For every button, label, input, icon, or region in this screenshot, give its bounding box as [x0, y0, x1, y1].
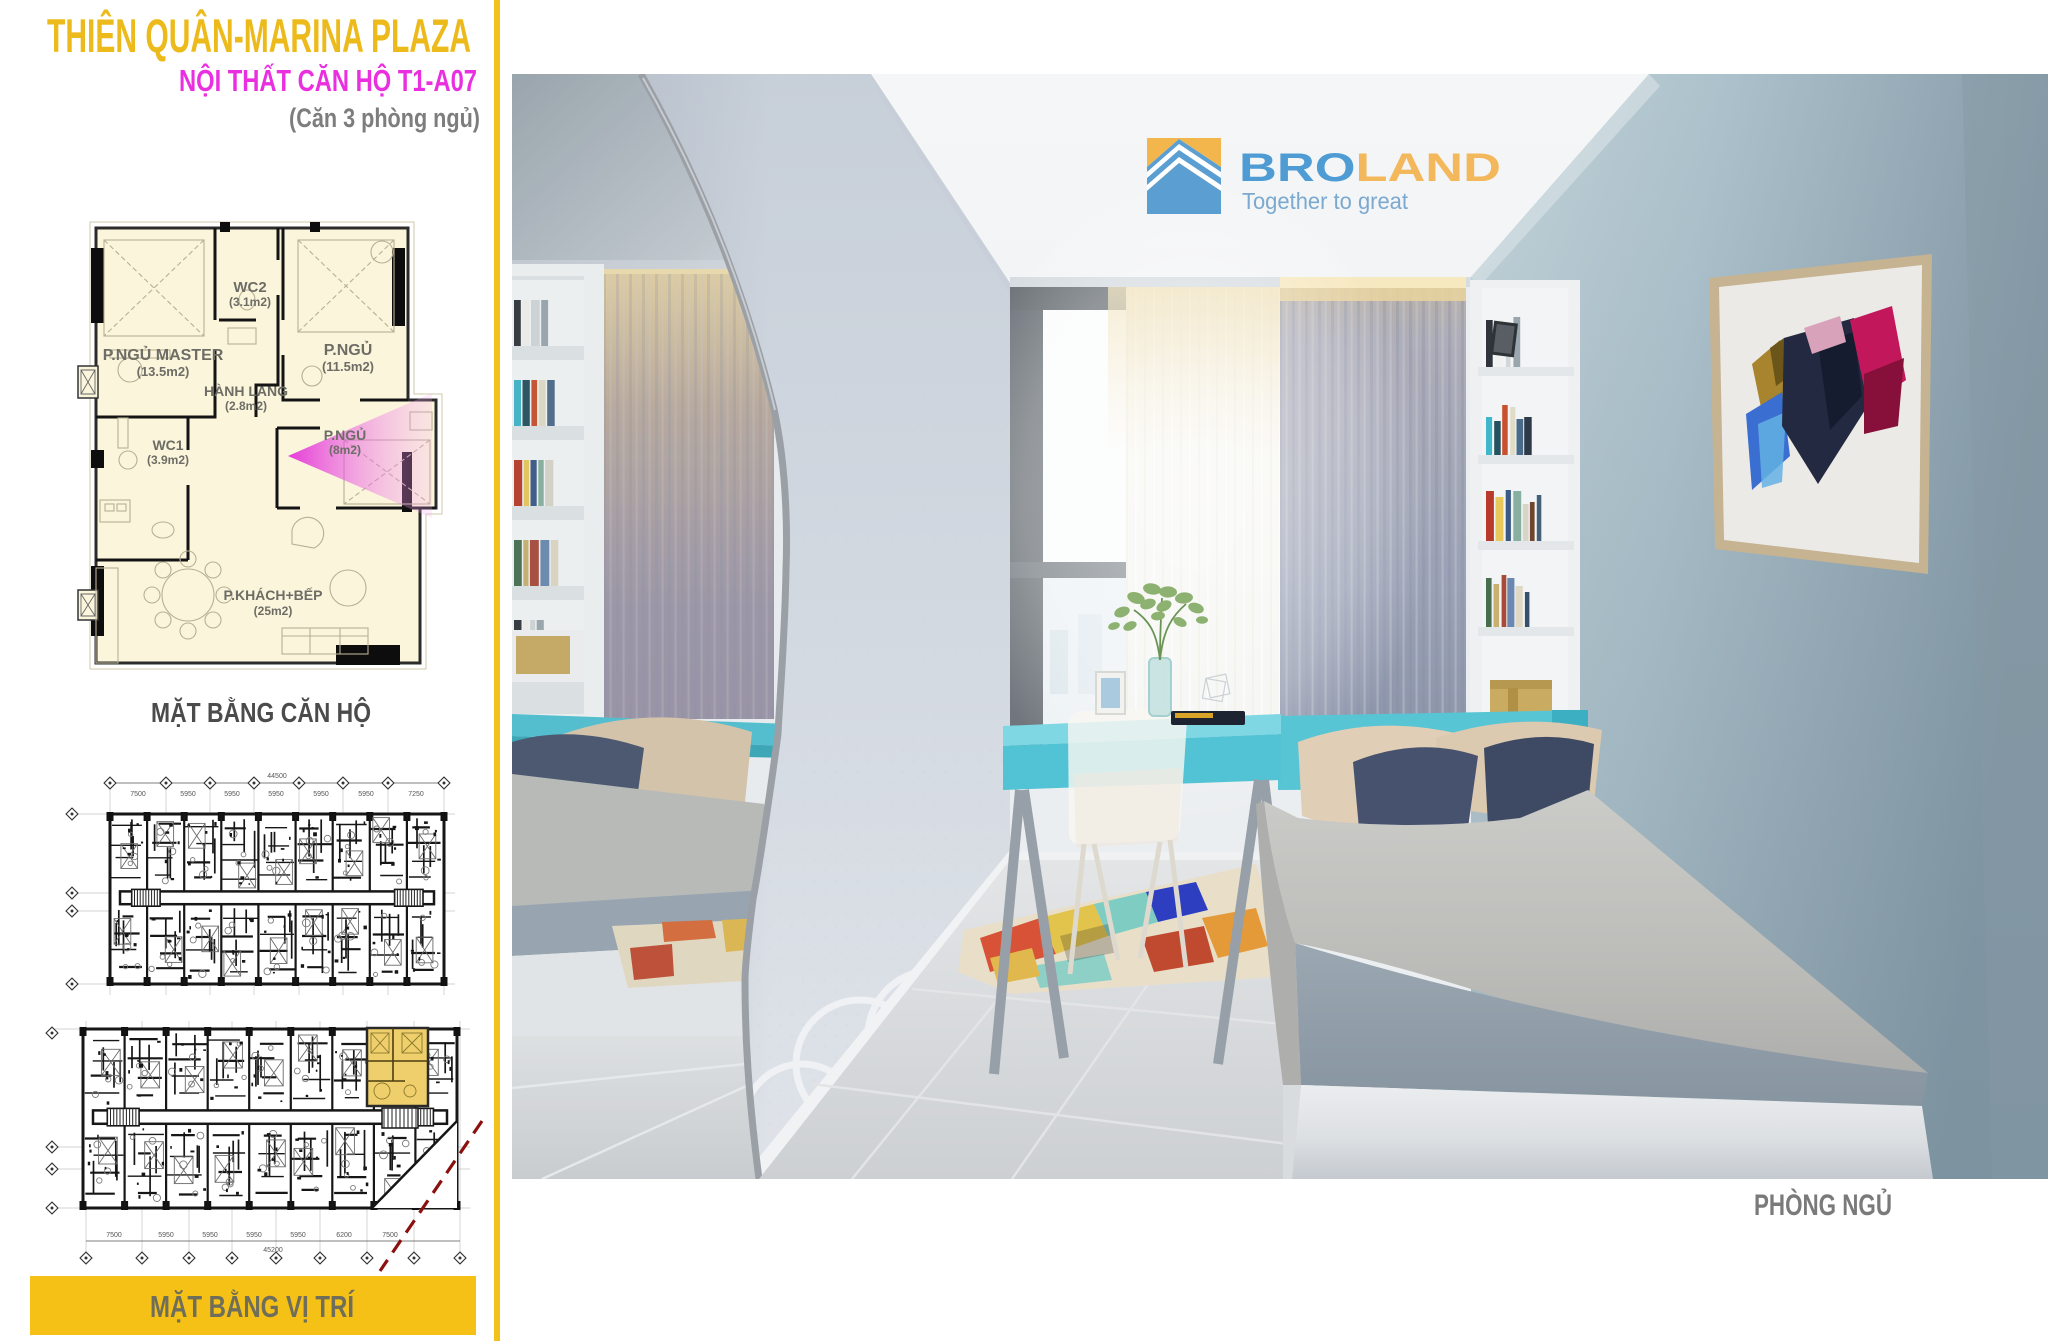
svg-text:7500: 7500 [130, 791, 146, 798]
svg-text:P.NGỦ: P.NGỦ [324, 426, 367, 443]
svg-text:5950: 5950 [224, 791, 240, 798]
svg-text:7500: 7500 [106, 1232, 122, 1239]
svg-text:BROLAND: BROLAND [1239, 146, 1501, 190]
svg-text:THIÊN QUÂN-MARINA PLAZA: THIÊN QUÂN-MARINA PLAZA [47, 9, 471, 62]
svg-text:7250: 7250 [408, 791, 424, 798]
svg-text:P.NGỦ: P.NGỦ [324, 340, 373, 359]
svg-text:(Căn 3 phòng ngủ): (Căn 3 phòng ngủ) [289, 103, 480, 133]
svg-text:5950: 5950 [358, 791, 374, 798]
svg-text:5950: 5950 [202, 1232, 218, 1239]
svg-text:5950: 5950 [313, 791, 329, 798]
svg-text:(13.5m2): (13.5m2) [137, 364, 190, 379]
svg-text:(8m2): (8m2) [329, 443, 361, 457]
svg-text:MẶT BẰNG CĂN HỘ: MẶT BẰNG CĂN HỘ [151, 696, 371, 728]
svg-text:5950: 5950 [180, 791, 196, 798]
svg-text:(3.1m2): (3.1m2) [229, 295, 271, 309]
svg-text:MẶT BẰNG VỊ TRÍ: MẶT BẰNG VỊ TRÍ [150, 1289, 355, 1324]
svg-text:(25m2): (25m2) [254, 604, 293, 618]
svg-text:WC1: WC1 [152, 437, 183, 453]
svg-text:5950: 5950 [268, 791, 284, 798]
svg-text:44500: 44500 [267, 773, 287, 780]
svg-text:(11.5m2): (11.5m2) [322, 359, 374, 374]
svg-text:PHÒNG NGỦ: PHÒNG NGỦ [1754, 1188, 1892, 1222]
svg-text:NỘI THẤT CĂN HỘ T1-A07: NỘI THẤT CĂN HỘ T1-A07 [179, 62, 477, 98]
svg-text:P.KHÁCH+BẾP: P.KHÁCH+BẾP [224, 587, 323, 603]
svg-text:5950: 5950 [290, 1232, 306, 1239]
svg-text:6200: 6200 [336, 1232, 352, 1239]
svg-text:(2.8m2): (2.8m2) [225, 399, 267, 413]
svg-text:(3.9m2): (3.9m2) [147, 453, 189, 467]
svg-text:HÀNH LANG: HÀNH LANG [204, 383, 288, 399]
svg-text:WC2: WC2 [233, 279, 266, 296]
svg-text:Together to great: Together to great [1242, 188, 1409, 214]
svg-text:45200: 45200 [263, 1247, 283, 1254]
svg-text:P.NGỦ MASTER: P.NGỦ MASTER [103, 345, 224, 364]
svg-text:5950: 5950 [158, 1232, 174, 1239]
svg-text:5950: 5950 [246, 1232, 262, 1239]
svg-text:7500: 7500 [382, 1232, 398, 1239]
